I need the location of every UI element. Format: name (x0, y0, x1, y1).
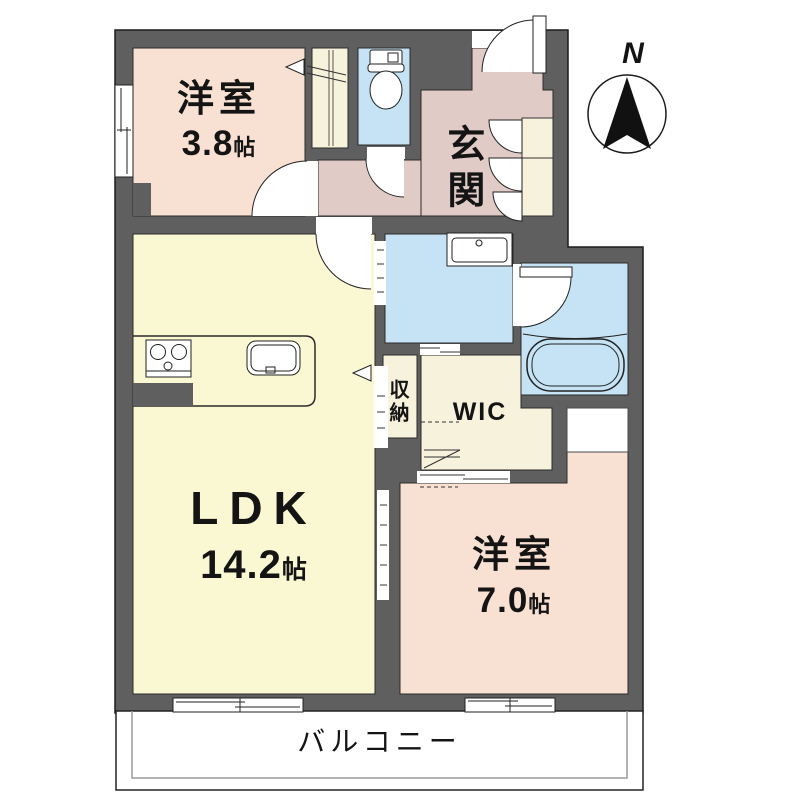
window-west-small (115, 85, 133, 177)
washroom-wic-opening (420, 344, 460, 355)
label-storage: 収納 (386, 362, 407, 442)
west-large-sliding-door (377, 490, 389, 600)
stove-icon (146, 340, 191, 377)
shoe-cabinet (489, 118, 553, 221)
label-west-room-small: 洋室 3.8帖 (133, 80, 305, 163)
label-north: N (608, 38, 658, 70)
room-size: 3.8帖 (133, 126, 305, 163)
utility-space (567, 408, 628, 452)
room-size: 7.0帖 (400, 583, 628, 620)
label-balcony: バルコニー (116, 727, 643, 756)
kitchen-sink-icon (247, 341, 300, 375)
room-name: 洋室 (400, 536, 628, 575)
label-wic: WIC (425, 399, 535, 425)
compass-icon (588, 75, 666, 153)
washbasin-icon (447, 233, 512, 266)
floorplan: 洋室 3.8帖 玄関 LDK 14.2帖 収納 WIC 洋室 7.0帖 バルコニ… (0, 0, 800, 800)
room-name: 洋室 (133, 80, 305, 119)
wall-pier (133, 183, 151, 216)
label-entrance: 玄関 (441, 110, 481, 230)
label-ldk: LDK 14.2帖 (133, 484, 375, 586)
room-ldk (133, 234, 375, 694)
room-closet (312, 48, 348, 148)
entrance-door (472, 16, 546, 73)
room-size: 14.2帖 (133, 544, 375, 586)
compass-needle (603, 77, 651, 149)
washroom-sliding-door (374, 241, 386, 305)
label-west-room-large: 洋室 7.0帖 (400, 536, 628, 620)
room-name: LDK (133, 484, 375, 532)
window-ldk-balcony (173, 698, 303, 712)
window-west-large-balcony (465, 698, 555, 712)
toilet-icon (368, 50, 404, 109)
